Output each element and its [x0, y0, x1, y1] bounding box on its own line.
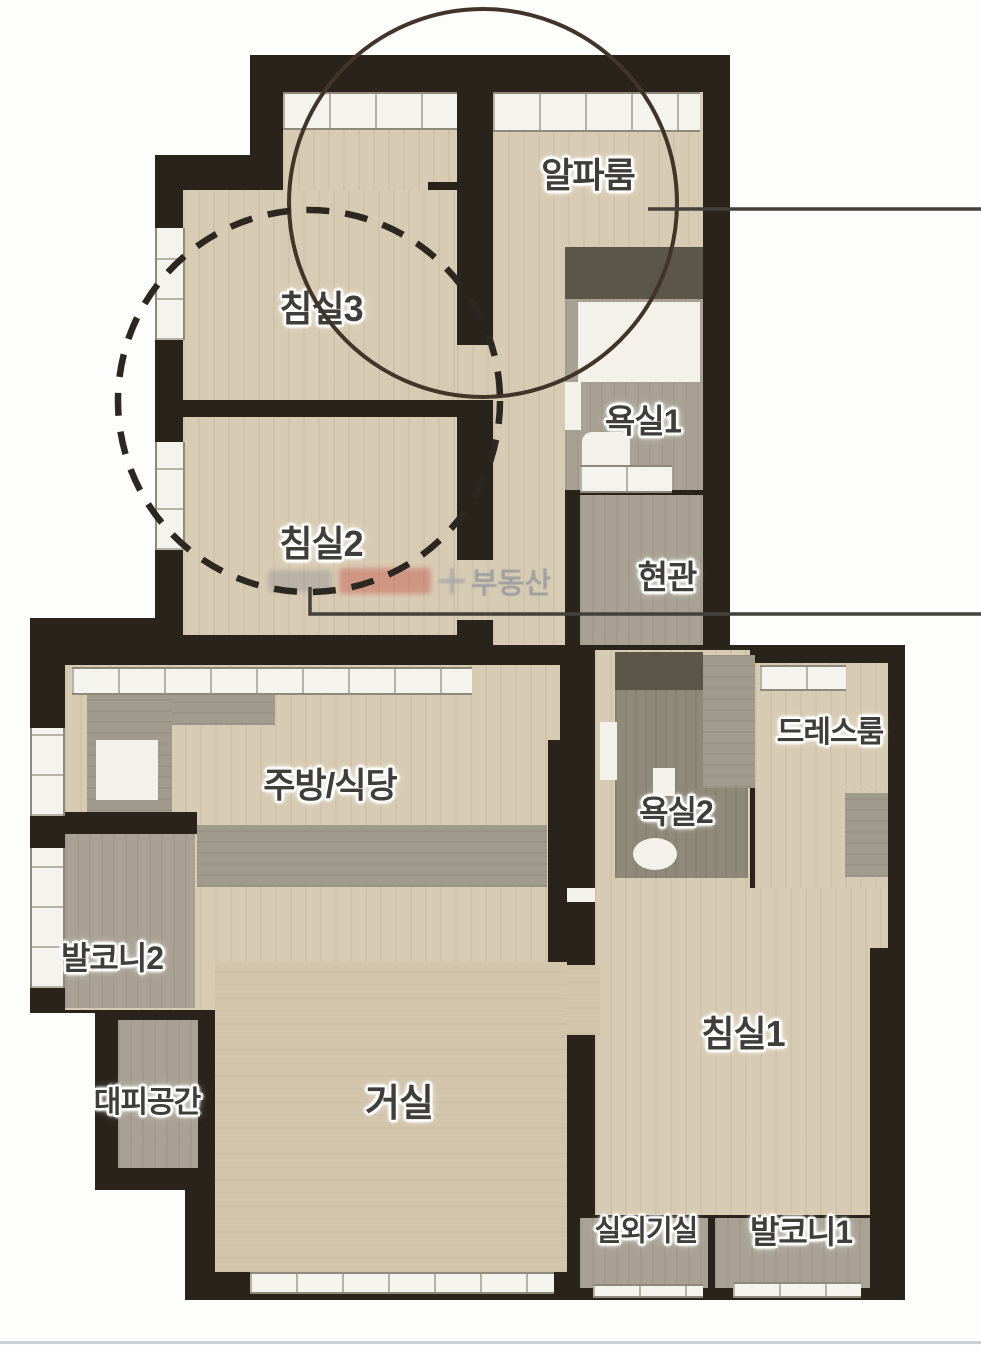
window-living [250, 1272, 554, 1294]
label-bathroom1: 욕실1 [605, 405, 681, 438]
label-kitchen-dining: 주방/식당 [263, 769, 397, 804]
window-outdoor-unit [593, 1284, 703, 1298]
label-balcony2: 발코니2 [61, 942, 163, 974]
kitchen-sink [96, 740, 158, 800]
label-bedroom3: 침실3 [279, 291, 362, 327]
label-entrance: 현관 [638, 561, 697, 594]
room-bedroom1 [595, 930, 870, 1215]
door-bathroom2 [600, 722, 617, 780]
realty-watermark: 부동산 [268, 560, 551, 602]
bathroom1-shower-strip [565, 247, 703, 299]
dress-closet-band [760, 665, 846, 691]
label-living-room: 거실 [365, 1085, 433, 1123]
window-upper-space [283, 92, 457, 130]
bathroom2-closet [615, 652, 703, 690]
label-dress-room: 드레스룸 [777, 718, 883, 748]
window-alpha [493, 92, 700, 132]
label-bathroom2: 욕실2 [639, 796, 713, 828]
watermark-blob-red [339, 568, 431, 594]
kitchen-island [197, 825, 547, 887]
entrance-door-band [580, 465, 672, 493]
wall-kitchen-hall [548, 740, 595, 962]
wall-balcony2-top [65, 812, 197, 834]
bathroom1-tub [578, 302, 700, 382]
label-outdoor-unit-room: 실외기실 [595, 1218, 698, 1247]
bathroom2-sink [653, 768, 675, 796]
bottom-divider-line [0, 1341, 981, 1344]
floor-plan-screenshot: 부동산 알파룸 침실3 욕실1 침실2 현관 드레스룸 주방/식당 욕실2 발코… [0, 0, 981, 1350]
watermark-blob-gray [268, 570, 332, 592]
door-bedroom3 [457, 345, 495, 400]
window-balcony1 [733, 1282, 861, 1298]
door-bathroom1 [565, 382, 581, 430]
living-hall-opening [567, 965, 600, 1035]
label-refuge-space: 대피공간 [94, 1088, 200, 1118]
window-balcony2 [30, 848, 65, 988]
bathroom2-toilet [633, 838, 677, 870]
anteroom-closet [845, 793, 888, 877]
label-bedroom2: 침실2 [279, 526, 362, 562]
label-bedroom1: 침실1 [701, 1016, 784, 1052]
window-bedroom3 [155, 228, 185, 340]
label-alpha-room: 알파룸 [541, 159, 635, 194]
wall-bedroom-divider [183, 400, 457, 417]
label-balcony1: 발코니1 [750, 1216, 852, 1248]
window-kitchen-west [30, 728, 65, 816]
watermark-text: 부동산 [471, 560, 551, 602]
watermark-star-icon [438, 568, 464, 594]
floor-plan: 부동산 알파룸 침실3 욕실1 침실2 현관 드레스룸 주방/식당 욕실2 발코… [0, 0, 981, 1350]
window-bedroom2 [155, 442, 185, 550]
kitchen-top-band [72, 667, 472, 695]
room-balcony2 [65, 834, 195, 1008]
dress-closet-left [703, 655, 755, 788]
